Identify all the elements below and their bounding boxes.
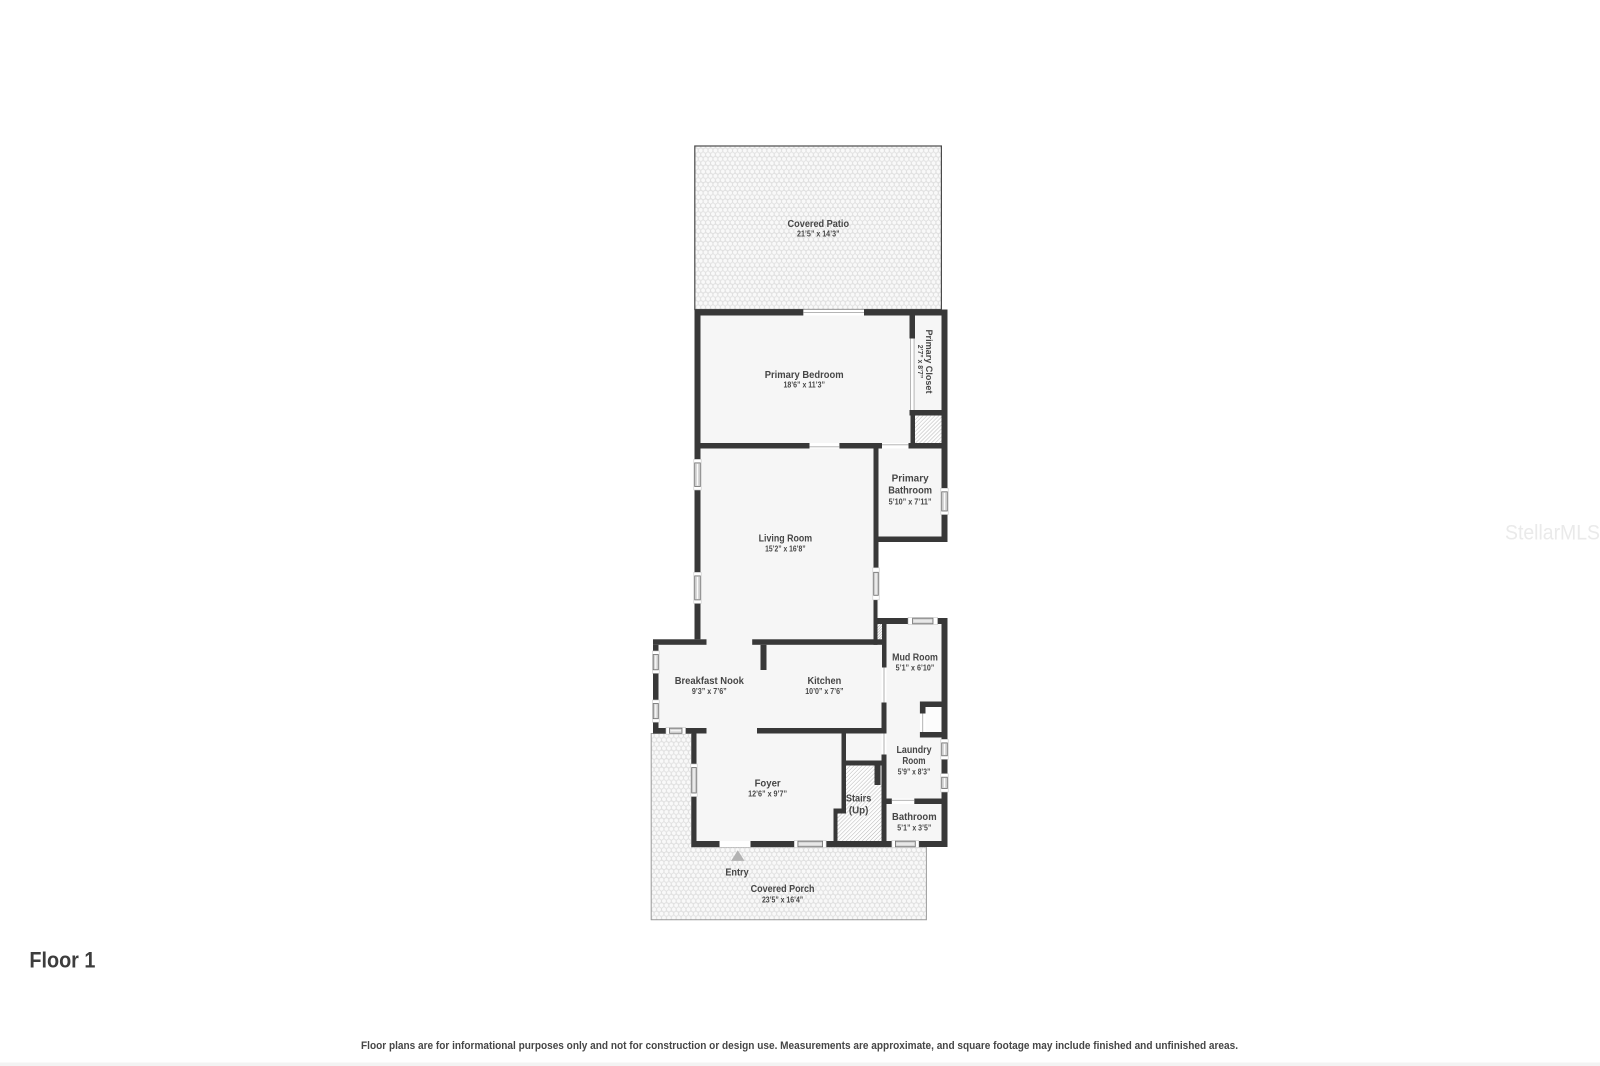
svg-text:Covered Patio: Covered Patio bbox=[788, 218, 850, 230]
svg-text:Bathroom: Bathroom bbox=[888, 485, 932, 497]
svg-text:Floor 1: Floor 1 bbox=[29, 948, 95, 973]
svg-text:StellarMLS: StellarMLS bbox=[1505, 522, 1600, 545]
svg-text:5’1” x 3’5”: 5’1” x 3’5” bbox=[897, 824, 931, 833]
svg-text:10’0” x 7’6”: 10’0” x 7’6” bbox=[805, 687, 843, 696]
svg-text:9’3” x 7’6”: 9’3” x 7’6” bbox=[692, 687, 727, 696]
svg-text:Room: Room bbox=[902, 755, 925, 767]
svg-text:Primary: Primary bbox=[892, 473, 929, 485]
svg-text:Entry: Entry bbox=[725, 866, 748, 878]
svg-text:Stairs: Stairs bbox=[846, 793, 872, 805]
svg-text:Primary Bedroom: Primary Bedroom bbox=[765, 369, 844, 381]
svg-text:Living Room: Living Room bbox=[759, 533, 813, 545]
svg-text:5’9” x 8’3”: 5’9” x 8’3” bbox=[898, 767, 931, 776]
svg-text:Bathroom: Bathroom bbox=[892, 811, 937, 823]
svg-text:15’2” x 16’8”: 15’2” x 16’8” bbox=[765, 544, 806, 553]
svg-text:Breakfast Nook: Breakfast Nook bbox=[675, 675, 744, 687]
svg-text:5’1” x 6’10”: 5’1” x 6’10” bbox=[896, 664, 935, 673]
svg-text:18’6” x 11’3”: 18’6” x 11’3” bbox=[783, 381, 825, 390]
svg-text:Kitchen: Kitchen bbox=[807, 675, 841, 687]
svg-text:Primary Closet: Primary Closet bbox=[923, 330, 934, 395]
svg-text:Foyer: Foyer bbox=[755, 778, 781, 790]
svg-text:Floor plans are for informatio: Floor plans are for informational purpos… bbox=[361, 1040, 1238, 1052]
svg-text:5’10” x 7’11”: 5’10” x 7’11” bbox=[889, 498, 932, 507]
svg-text:12’6” x 9’7”: 12’6” x 9’7” bbox=[748, 789, 787, 798]
svg-text:23’5” x 16’4”: 23’5” x 16’4” bbox=[762, 896, 803, 905]
svg-text:Covered Porch: Covered Porch bbox=[751, 883, 815, 895]
svg-text:2’7” x 8’7”: 2’7” x 8’7” bbox=[916, 345, 923, 379]
svg-text:Mud Room: Mud Room bbox=[892, 652, 938, 664]
svg-text:(Up): (Up) bbox=[849, 805, 869, 817]
svg-text:21’5” x 14’3”: 21’5” x 14’3” bbox=[797, 230, 840, 239]
